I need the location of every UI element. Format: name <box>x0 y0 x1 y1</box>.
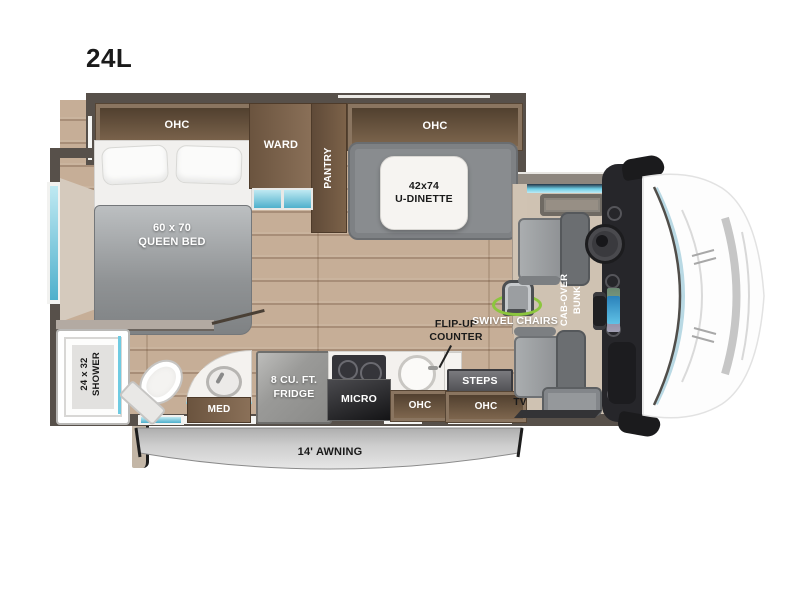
microwave: MICRO <box>327 379 391 421</box>
rear-ledge <box>60 178 96 322</box>
queen-bed-label: 60 x 70 QUEEN BED <box>112 222 232 250</box>
med-label: MED <box>208 404 231 417</box>
pantry-label: PANTRY <box>323 147 336 188</box>
dinette-ohc-label: OHC <box>422 120 447 134</box>
floorplan: 24L OHC 60 x 70 QUEEN BED WARD PANTRY OH… <box>0 0 800 600</box>
console-buttons <box>593 292 606 330</box>
kitchen-ohc-label: OHC <box>409 400 432 413</box>
dinette-table: 42x74 U-DINETTE <box>380 156 468 230</box>
front-cap <box>630 140 770 446</box>
tv-mount <box>514 410 602 418</box>
bedroom-step-1 <box>252 188 283 210</box>
fridge: 8 CU. FT. FRIDGE <box>256 351 332 424</box>
pillow-right <box>175 145 242 185</box>
tv-label: TV <box>506 397 534 410</box>
dinette-label: 42x74 U-DINETTE <box>395 180 453 206</box>
swivel-arrow-front <box>492 294 542 316</box>
top-wall-window <box>338 95 490 98</box>
dash-speaker-2 <box>605 274 620 289</box>
vanity-sink <box>206 366 242 398</box>
steps-label: STEPS <box>462 375 497 388</box>
passenger-seat-armrest <box>518 276 560 285</box>
wardrobe: WARD <box>250 104 312 188</box>
med-cabinet: MED <box>188 398 250 422</box>
stove-burner-1 <box>338 360 358 380</box>
pillow-left <box>101 144 169 185</box>
fridge-label: 8 CU. FT. FRIDGE <box>271 374 317 400</box>
hood <box>643 174 764 418</box>
entry-ohc-label: OHC <box>475 401 498 414</box>
bedroom-ohc-label: OHC <box>164 119 189 133</box>
shower-glass-edge <box>118 336 121 414</box>
wardrobe-label: WARD <box>264 139 298 153</box>
console-screen <box>607 288 620 332</box>
bedroom-step-2 <box>282 188 313 210</box>
windshield-top-glass <box>526 184 610 193</box>
floorplan-title: 24L <box>86 42 132 75</box>
dash-speaker-1 <box>607 206 622 221</box>
driver-seat-armrest <box>514 327 556 336</box>
cab-over-bunk-label: CAB-OVER BUNK <box>559 265 585 335</box>
awning-label: 14' AWNING <box>270 446 390 460</box>
kitchen-ohc-cabinet: OHC <box>391 391 449 421</box>
kitchen-sink <box>398 355 436 393</box>
microwave-label: MICRO <box>341 393 377 406</box>
steering-wheel-hub <box>596 235 608 247</box>
shower-label: 24 x 32 SHOWER <box>79 339 103 409</box>
swivel-chairs-label: SWIVEL CHAIRS <box>455 315 575 328</box>
rear-window <box>50 186 58 300</box>
kitchen-faucet <box>428 366 438 370</box>
